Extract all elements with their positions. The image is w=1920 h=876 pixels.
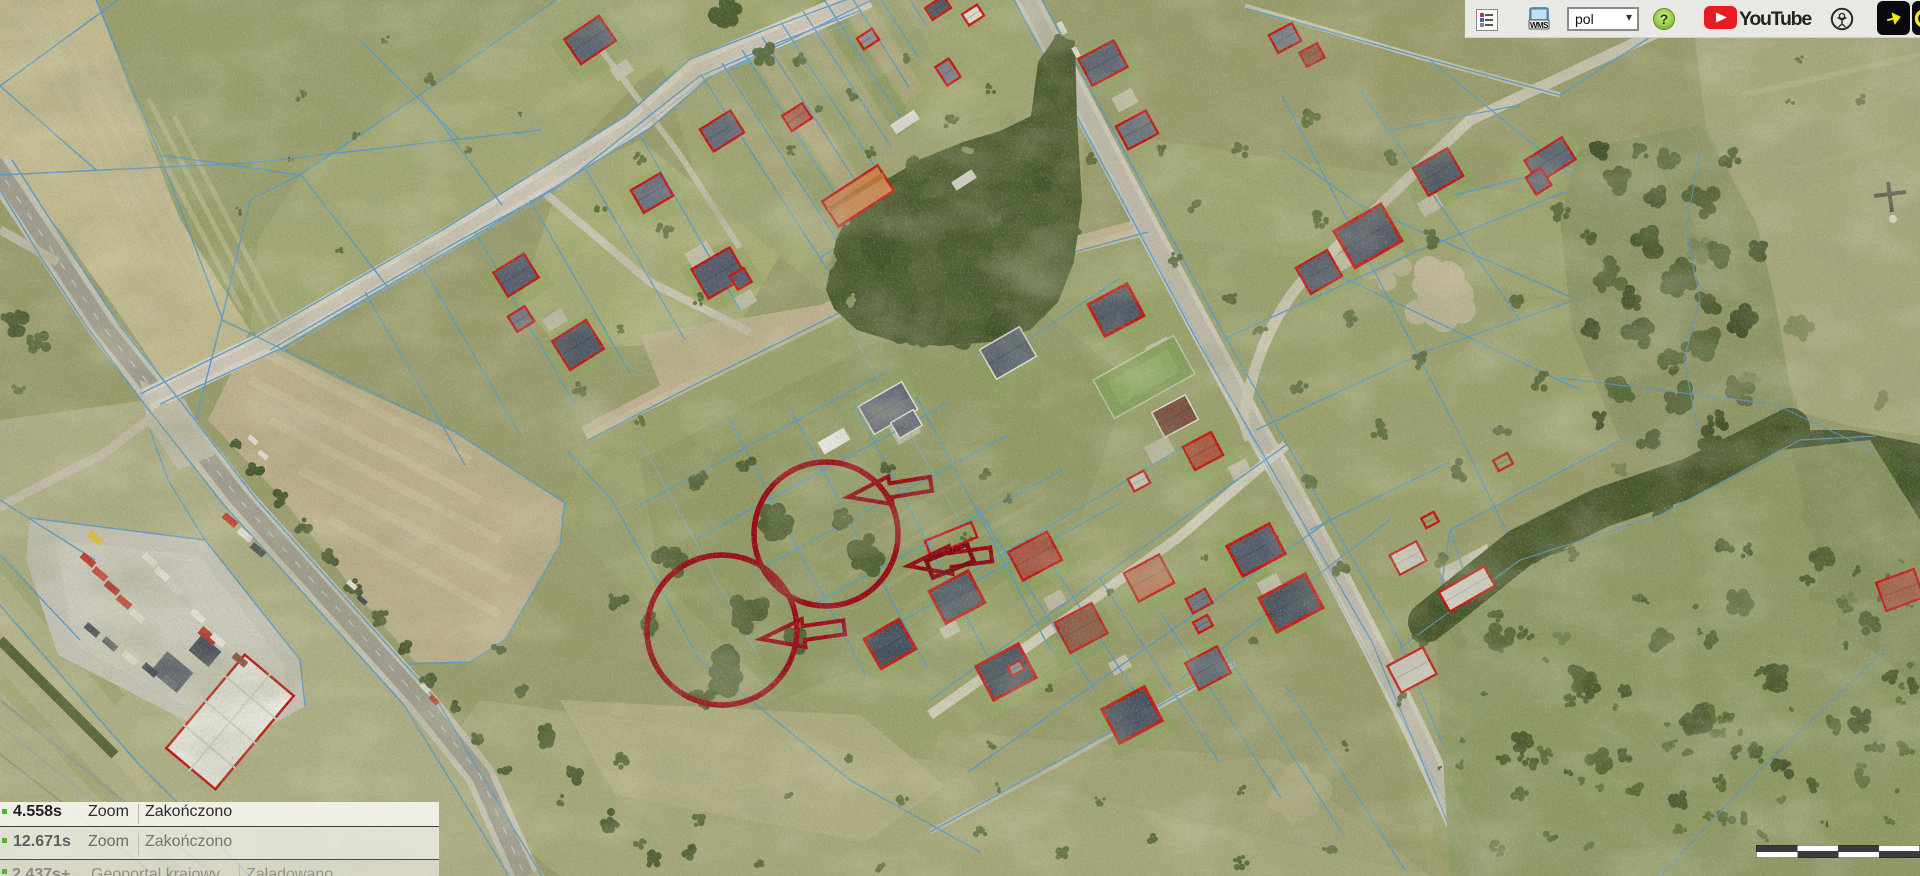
svg-text:?: ? <box>1660 11 1669 27</box>
svg-text:YouTube: YouTube <box>1739 9 1812 30</box>
svg-text:WMS: WMS <box>1530 21 1549 30</box>
